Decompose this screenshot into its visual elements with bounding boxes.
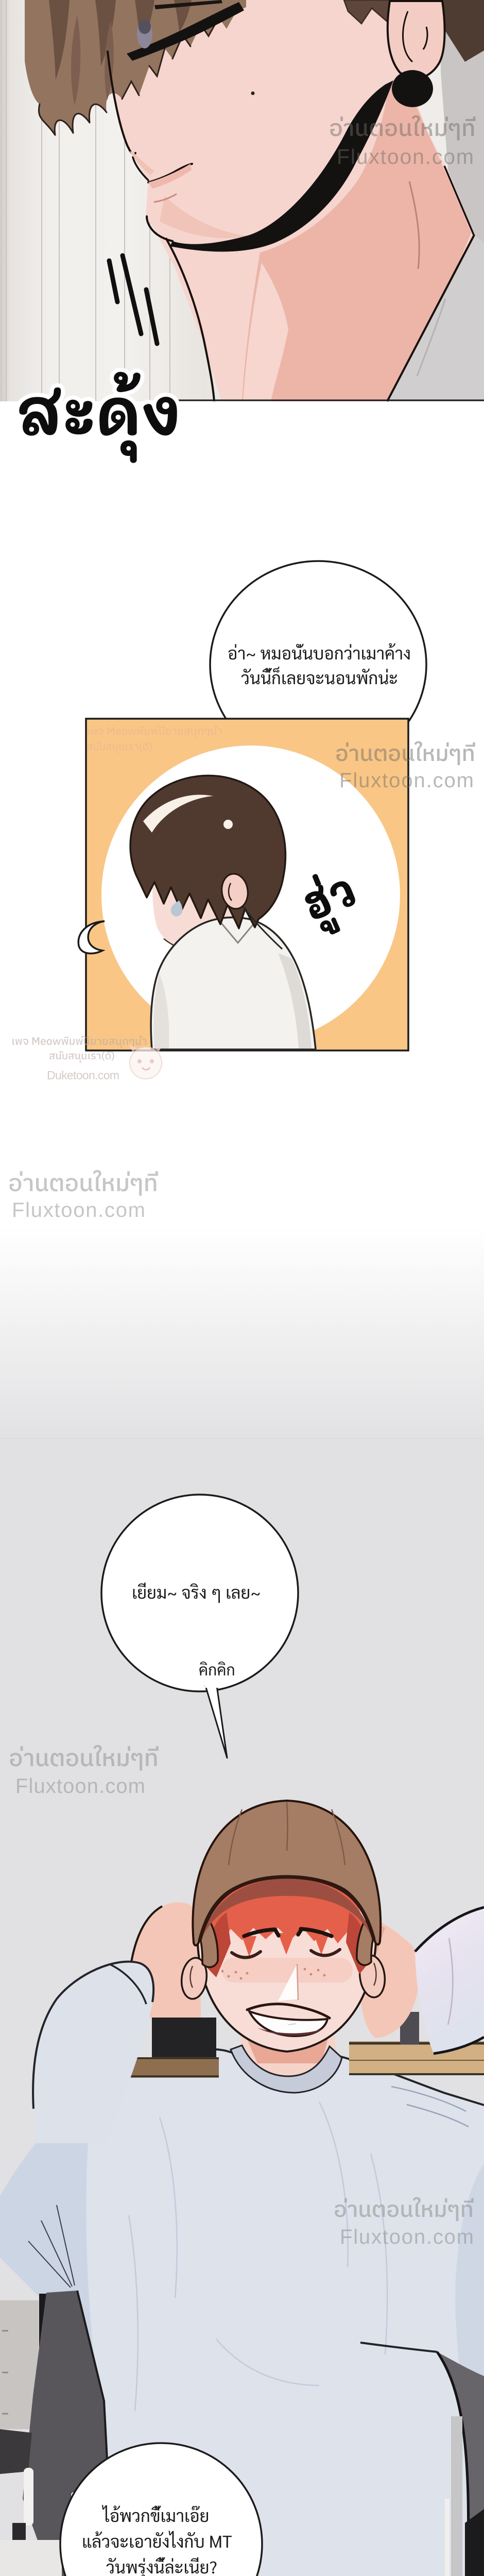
svg-text:Fluxtoon.com: Fluxtoon.com	[12, 1199, 145, 1222]
svg-text:Fluxtoon.com: Fluxtoon.com	[339, 769, 474, 792]
svg-text:Fluxtoon.com: Fluxtoon.com	[15, 1775, 145, 1798]
svg-text:Duketoon.com: Duketoon.com	[47, 1069, 119, 1082]
svg-text:Fluxtoon.com: Fluxtoon.com	[337, 145, 474, 168]
svg-text:Fluxtoon.com: Fluxtoon.com	[340, 2226, 474, 2248]
